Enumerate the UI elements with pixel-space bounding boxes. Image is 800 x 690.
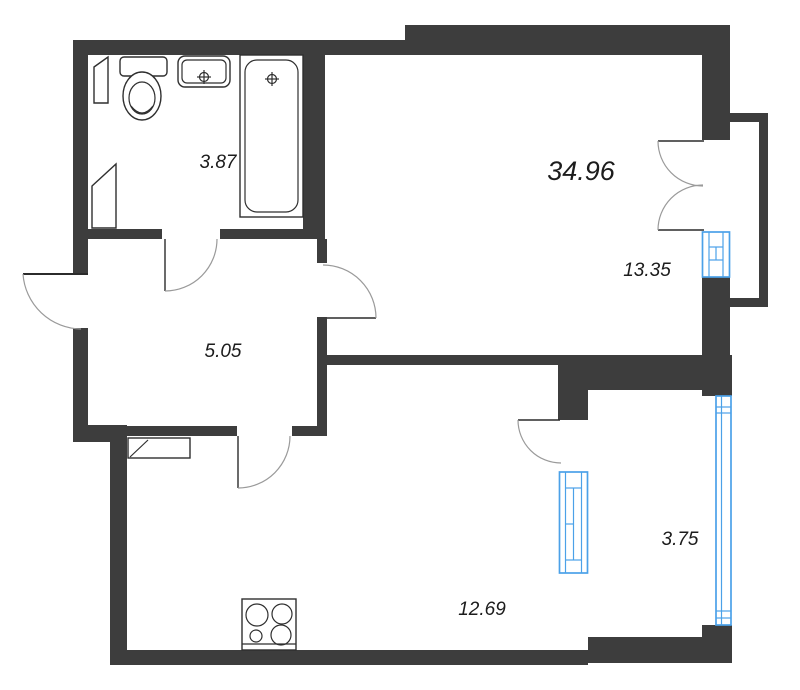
wall-right-upper <box>702 25 730 140</box>
entrance-door-swing-arc <box>23 274 81 329</box>
loggia-bottom-wall <box>730 298 768 307</box>
bathroom-door <box>165 239 217 291</box>
kitchen-door <box>238 436 290 488</box>
hall-cabinet-body <box>128 438 190 458</box>
outer-walls <box>73 25 732 665</box>
bathroom-fixtures <box>92 55 303 228</box>
bathroom-door-swing-arc <box>165 239 217 291</box>
wall-bottom <box>110 650 588 665</box>
wall-hall-bottom-right <box>292 426 327 436</box>
wall-top-right <box>405 25 730 55</box>
wall-hall-bottom-left <box>127 426 237 436</box>
loggia-right-wall <box>759 113 768 307</box>
wall-hall-living-upper <box>317 239 327 263</box>
toilet <box>120 57 167 120</box>
wall-left-upper <box>73 40 88 273</box>
bathtub <box>240 55 303 217</box>
loggia-glazing <box>716 396 731 625</box>
living-room-door <box>323 265 376 318</box>
living-room-window <box>703 232 730 277</box>
balcony-door-top-arc <box>658 141 703 186</box>
wall-bathroom-right-thick <box>303 55 325 239</box>
balcony-door-bottom-arc <box>658 185 703 230</box>
area-label-bathroom: 3.87 <box>200 152 238 173</box>
loggia-door-swing-arc <box>518 420 561 463</box>
balcony-double-door <box>658 141 704 230</box>
kitchen-door-swing-arc <box>238 436 290 488</box>
wall-bottom-right-corner <box>702 625 732 663</box>
upper-loggia-walls <box>730 113 768 307</box>
wall-hall-living-lower <box>317 317 327 436</box>
wall-living-kitchen <box>327 355 558 365</box>
wall-bathroom-bottom-right <box>220 229 305 239</box>
wall-loggia-pillar <box>558 355 588 420</box>
sink <box>178 56 230 87</box>
kitchen-window <box>560 472 588 573</box>
hall-cabinet <box>128 438 190 458</box>
duct-shaft-upper <box>94 57 108 103</box>
wall-left-lower <box>73 328 88 442</box>
wall-bathroom-bottom-left <box>88 229 162 239</box>
wall-bottom-left-step <box>73 425 127 442</box>
wall-right-mid <box>702 277 730 355</box>
entrance-door <box>23 274 88 329</box>
floor-plan-drawing: 3.87 34.96 13.35 5.05 3.75 12.69 <box>0 0 800 690</box>
area-label-hallway: 5.05 <box>205 341 242 362</box>
wall-loggia-divider-right <box>702 355 732 396</box>
inner-walls <box>88 55 558 436</box>
floor-plan: 3.87 34.96 13.35 5.05 3.75 12.69 <box>0 0 800 690</box>
living-room-door-swing-arc <box>323 265 376 318</box>
area-label-loggia: 3.75 <box>662 529 699 550</box>
loggia-door <box>518 420 561 463</box>
duct-shaft-lower <box>92 164 116 228</box>
wall-top-left <box>73 40 405 55</box>
area-label-kitchen-living: 12.69 <box>458 599 506 620</box>
area-label-total: 34.96 <box>547 156 616 186</box>
stove <box>242 599 296 650</box>
wall-kitchen-left <box>110 442 127 665</box>
area-label-living-room: 13.35 <box>623 260 671 281</box>
